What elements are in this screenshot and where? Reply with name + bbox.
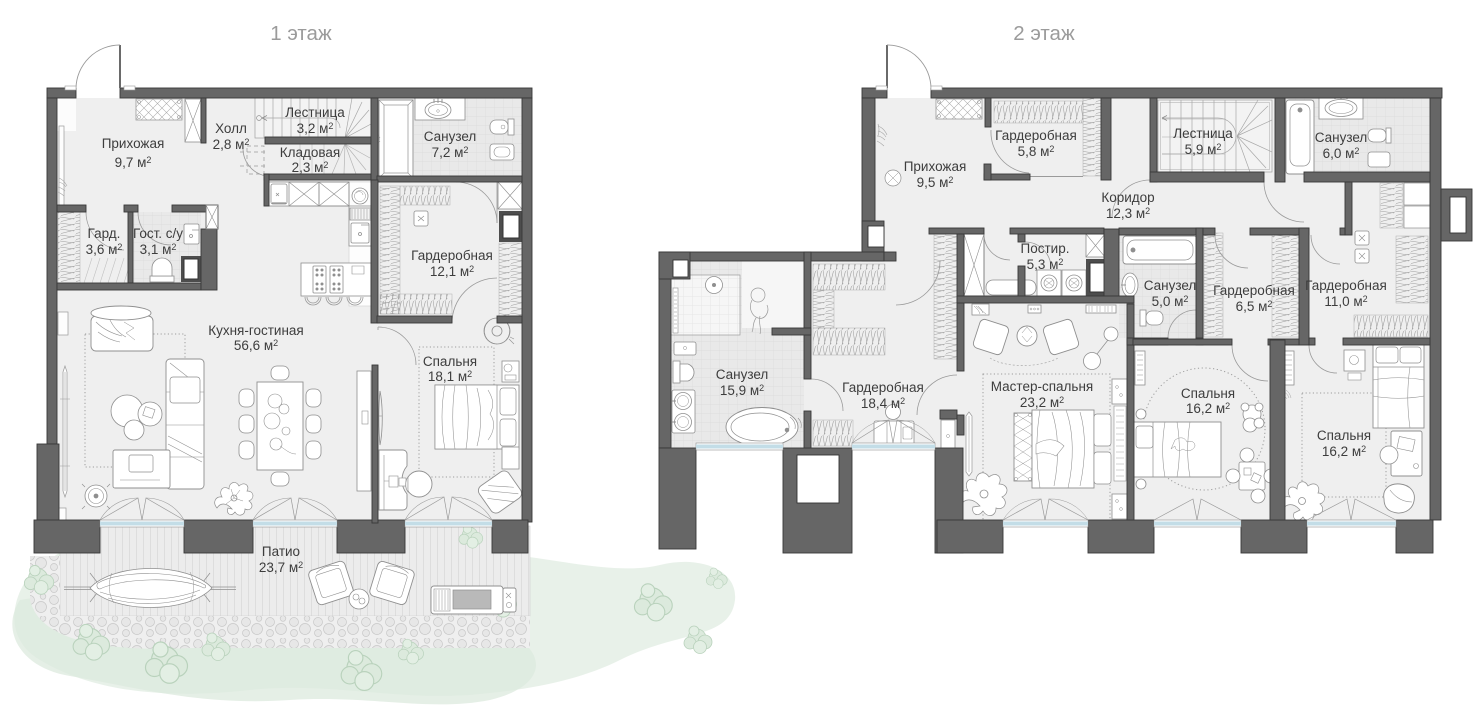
svg-text:3,1 м2: 3,1 м2 [140,242,177,257]
svg-text:Гардеробная: Гардеробная [842,380,924,395]
svg-text:Гард.: Гард. [88,226,121,241]
svg-text:15,9 м2: 15,9 м2 [720,383,764,398]
svg-text:5,8 м2: 5,8 м2 [1018,144,1055,159]
svg-text:Коридор: Коридор [1101,190,1154,205]
svg-text:5,3 м2: 5,3 м2 [1027,257,1064,272]
svg-text:7,2 м2: 7,2 м2 [432,145,469,160]
svg-text:9,7 м2: 9,7 м2 [115,155,152,170]
svg-text:Санузел: Санузел [424,129,477,144]
svg-text:Постир.: Постир. [1021,241,1070,256]
svg-text:11,0 м2: 11,0 м2 [1324,294,1367,309]
svg-text:12,3 м2: 12,3 м2 [1106,206,1150,221]
svg-text:5,0 м2: 5,0 м2 [1152,294,1189,309]
svg-text:Санузел: Санузел [716,367,769,382]
svg-text:Кладовая: Кладовая [280,145,340,160]
svg-text:Санузел: Санузел [1144,278,1197,293]
svg-text:12,1 м2: 12,1 м2 [430,264,474,279]
svg-text:16,2 м2: 16,2 м2 [1322,444,1366,459]
svg-text:9,5 м2: 9,5 м2 [917,175,954,190]
svg-text:6,0 м2: 6,0 м2 [1323,146,1360,161]
svg-text:2,8 м2: 2,8 м2 [213,137,250,152]
svg-text:Гардеробная: Гардеробная [1305,278,1387,293]
svg-text:Мастер-спальня: Мастер-спальня [991,379,1093,394]
svg-text:Спальня: Спальня [1181,386,1235,401]
svg-text:18,4 м2: 18,4 м2 [861,396,905,411]
svg-text:23,2 м2: 23,2 м2 [1020,395,1064,410]
svg-text:Холл: Холл [215,121,247,136]
svg-text:Лестница: Лестница [285,105,345,120]
svg-text:5,9 м2: 5,9 м2 [1185,142,1222,157]
svg-text:Спальня: Спальня [423,354,477,369]
svg-text:1 этаж: 1 этаж [270,22,332,45]
svg-text:16,2 м2: 16,2 м2 [1186,401,1230,416]
svg-text:Гардеробная: Гардеробная [1213,283,1295,298]
svg-text:Прихожая: Прихожая [102,136,165,151]
svg-text:3,6 м2: 3,6 м2 [86,242,123,257]
svg-text:Спальня: Спальня [1317,428,1371,443]
svg-text:Гардеробная: Гардеробная [995,128,1077,143]
svg-text:2,3 м2: 2,3 м2 [292,160,329,175]
svg-text:Кухня-гостиная: Кухня-гостиная [208,323,304,338]
svg-text:Санузел: Санузел [1315,130,1368,145]
svg-text:6,5 м2: 6,5 м2 [1236,299,1273,314]
svg-text:2 этаж: 2 этаж [1013,22,1075,45]
svg-text:23,7 м2: 23,7 м2 [259,560,303,575]
svg-text:Гост. с/у: Гост. с/у [133,226,183,241]
svg-text:3,2 м2: 3,2 м2 [297,121,334,136]
svg-text:56,6 м2: 56,6 м2 [234,338,278,353]
svg-text:18,1 м2: 18,1 м2 [428,369,472,384]
svg-text:Гардеробная: Гардеробная [411,248,493,263]
svg-text:Патио: Патио [262,544,300,559]
svg-text:Лестница: Лестница [1173,126,1233,141]
svg-text:Прихожая: Прихожая [904,159,967,174]
